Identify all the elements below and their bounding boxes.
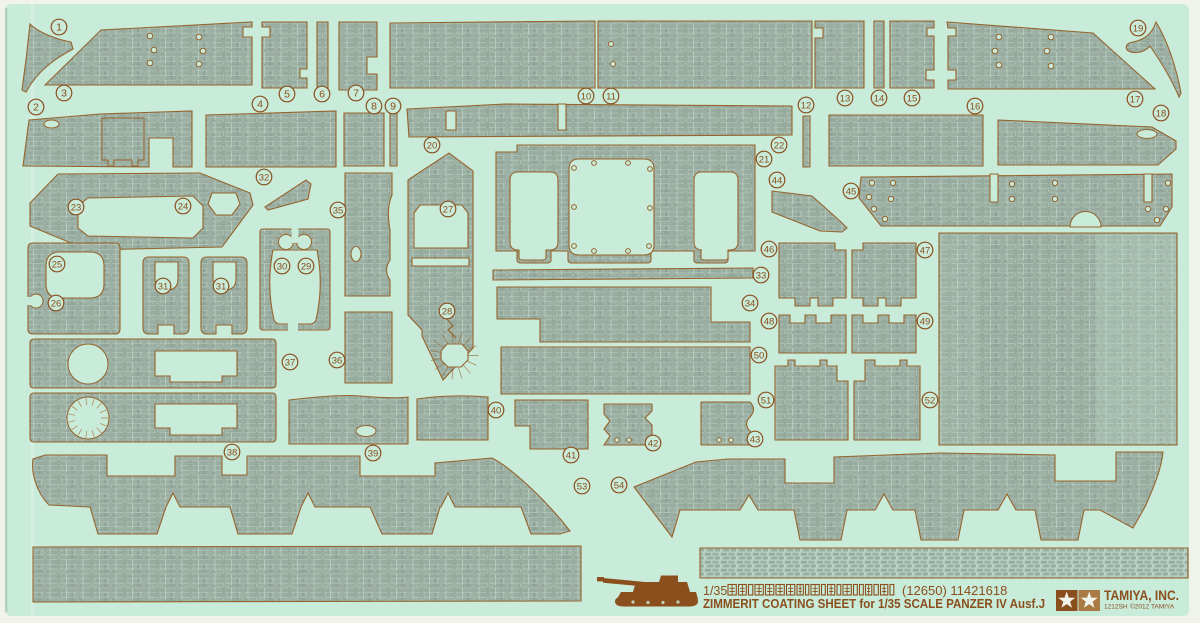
svg-text:16: 16 [970, 101, 981, 112]
svg-text:6: 6 [319, 88, 325, 100]
svg-text:40: 40 [491, 405, 502, 416]
svg-text:2: 2 [33, 101, 39, 113]
svg-text:49: 49 [920, 316, 931, 327]
svg-text:29: 29 [301, 261, 312, 272]
svg-text:39: 39 [368, 448, 379, 459]
svg-text:12: 12 [801, 100, 812, 111]
svg-text:51: 51 [761, 395, 772, 406]
svg-text:TAMIYA, INC.: TAMIYA, INC. [1104, 588, 1179, 603]
svg-text:3: 3 [61, 87, 67, 99]
svg-text:33: 33 [756, 270, 767, 281]
svg-text:7: 7 [353, 87, 359, 99]
svg-text:18: 18 [1156, 108, 1167, 119]
svg-text:50: 50 [754, 350, 765, 361]
svg-text:48: 48 [764, 316, 775, 327]
svg-text:47: 47 [920, 245, 931, 256]
svg-text:37: 37 [285, 357, 296, 368]
svg-text:27: 27 [443, 204, 454, 215]
svg-text:52: 52 [925, 395, 936, 406]
svg-text:19: 19 [1133, 23, 1144, 34]
svg-text:9: 9 [390, 100, 396, 112]
svg-text:38: 38 [227, 447, 238, 458]
svg-text:31: 31 [216, 281, 227, 292]
svg-text:53: 53 [577, 481, 588, 492]
svg-text:42: 42 [648, 438, 659, 449]
svg-text:10: 10 [581, 91, 592, 102]
svg-text:8: 8 [371, 100, 377, 112]
svg-text:ZIMMERIT COATING SHEET for 1/3: ZIMMERIT COATING SHEET for 1/35 SCALE PA… [703, 596, 1045, 611]
svg-text:36: 36 [332, 355, 343, 366]
svg-text:45: 45 [846, 186, 857, 197]
svg-text:31: 31 [158, 281, 169, 292]
svg-text:30: 30 [277, 261, 288, 272]
svg-text:20: 20 [427, 140, 438, 151]
svg-text:32: 32 [259, 172, 270, 183]
svg-text:44: 44 [772, 175, 783, 186]
svg-text:54: 54 [614, 480, 625, 491]
svg-text:23: 23 [71, 202, 82, 213]
svg-text:4: 4 [257, 98, 263, 110]
svg-text:©2012 TAMIYA: ©2012 TAMIYA [1130, 603, 1175, 611]
svg-text:46: 46 [764, 244, 775, 255]
svg-text:11: 11 [606, 91, 616, 102]
svg-text:21: 21 [759, 154, 770, 165]
svg-text:14: 14 [874, 93, 885, 104]
svg-text:1212SH: 1212SH [1104, 604, 1128, 611]
svg-text:41: 41 [566, 450, 577, 461]
svg-text:22: 22 [774, 140, 785, 151]
svg-text:26: 26 [51, 298, 62, 309]
svg-text:28: 28 [442, 306, 453, 317]
svg-text:43: 43 [750, 434, 761, 445]
svg-text:17: 17 [1130, 94, 1141, 105]
svg-text:24: 24 [178, 201, 189, 212]
svg-text:13: 13 [840, 93, 851, 104]
svg-text:1: 1 [56, 21, 62, 33]
svg-text:5: 5 [284, 88, 290, 100]
svg-text:15: 15 [907, 93, 918, 104]
svg-text:25: 25 [52, 259, 63, 270]
svg-text:35: 35 [333, 205, 344, 216]
svg-text:34: 34 [745, 298, 756, 309]
